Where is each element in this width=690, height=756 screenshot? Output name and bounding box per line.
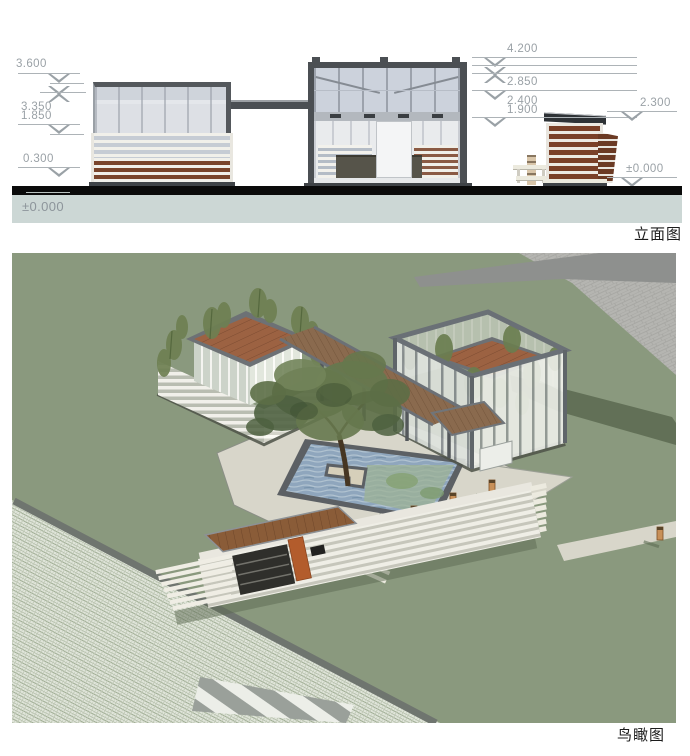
level-marker-icon [48, 125, 70, 134]
dim-line [472, 65, 637, 66]
level-label-1850: 1.850 [21, 111, 52, 123]
aerial-view [12, 253, 676, 723]
dim-line [607, 177, 677, 178]
light-fixture [364, 114, 375, 118]
louver-post [230, 133, 233, 184]
ground-fill [12, 195, 682, 223]
entry-door [376, 121, 412, 178]
dim-line [472, 117, 637, 118]
connecting-beam [231, 100, 309, 109]
level-label-1900: 1.900 [507, 105, 538, 117]
dim-line [607, 111, 677, 112]
roof-strut [394, 76, 459, 94]
drawing-sheet: 3.600 3.350 1.850 0.300 [0, 0, 690, 756]
dim-line [40, 92, 86, 93]
level-label-2850: 2.850 [507, 77, 538, 89]
roof-strut [316, 76, 381, 94]
elevation-title: 立面图 [634, 227, 682, 242]
clerestory-glazing [314, 68, 460, 112]
main-pavilion-elevation [308, 62, 467, 184]
dim-line [472, 57, 637, 58]
level-marker-icon [484, 74, 506, 83]
light-fixture [432, 114, 443, 118]
louver-post [91, 133, 94, 184]
light-beam [314, 112, 460, 121]
tower-side-louvers [598, 132, 618, 183]
bench-slab [516, 176, 546, 181]
dim-line [50, 134, 84, 135]
elevation-panel: 3.600 3.350 1.850 0.300 [0, 0, 690, 250]
left-pavilion-wood-louvers [91, 158, 233, 184]
level-label-ground-left: ±0.000 [22, 200, 64, 213]
level-label-0300: 0.300 [23, 154, 54, 166]
ground-line [12, 186, 682, 195]
level-label-2300: 2.300 [640, 98, 671, 110]
level-marker-icon [484, 91, 506, 100]
light-fixture [330, 114, 341, 118]
ground-tick [26, 192, 70, 193]
level-marker-icon [48, 74, 70, 83]
tower-post [546, 123, 549, 183]
level-label-3600: 3.600 [16, 59, 47, 71]
left-pavilion-glass-elevation [93, 82, 231, 135]
dim-line [50, 83, 84, 84]
lily-cluster [420, 487, 444, 499]
dim-line [472, 90, 637, 91]
level-marker-icon [484, 118, 506, 127]
dim-line [18, 124, 80, 125]
level-label-4200: 4.200 [507, 44, 538, 56]
light-fixture [398, 114, 409, 118]
tower-louvers [548, 123, 601, 183]
main-hall-glazing [314, 121, 460, 178]
left-pavilion-upper-louvers [91, 133, 233, 159]
dim-line [472, 73, 637, 74]
level-label-ground-right: ±0.000 [626, 164, 664, 176]
dim-line [18, 167, 80, 168]
aerial-title: 鸟瞰图 [617, 728, 665, 743]
transom-line [314, 90, 460, 91]
level-marker-icon [48, 168, 70, 177]
dim-line [18, 73, 80, 74]
lily-cluster [386, 473, 418, 489]
